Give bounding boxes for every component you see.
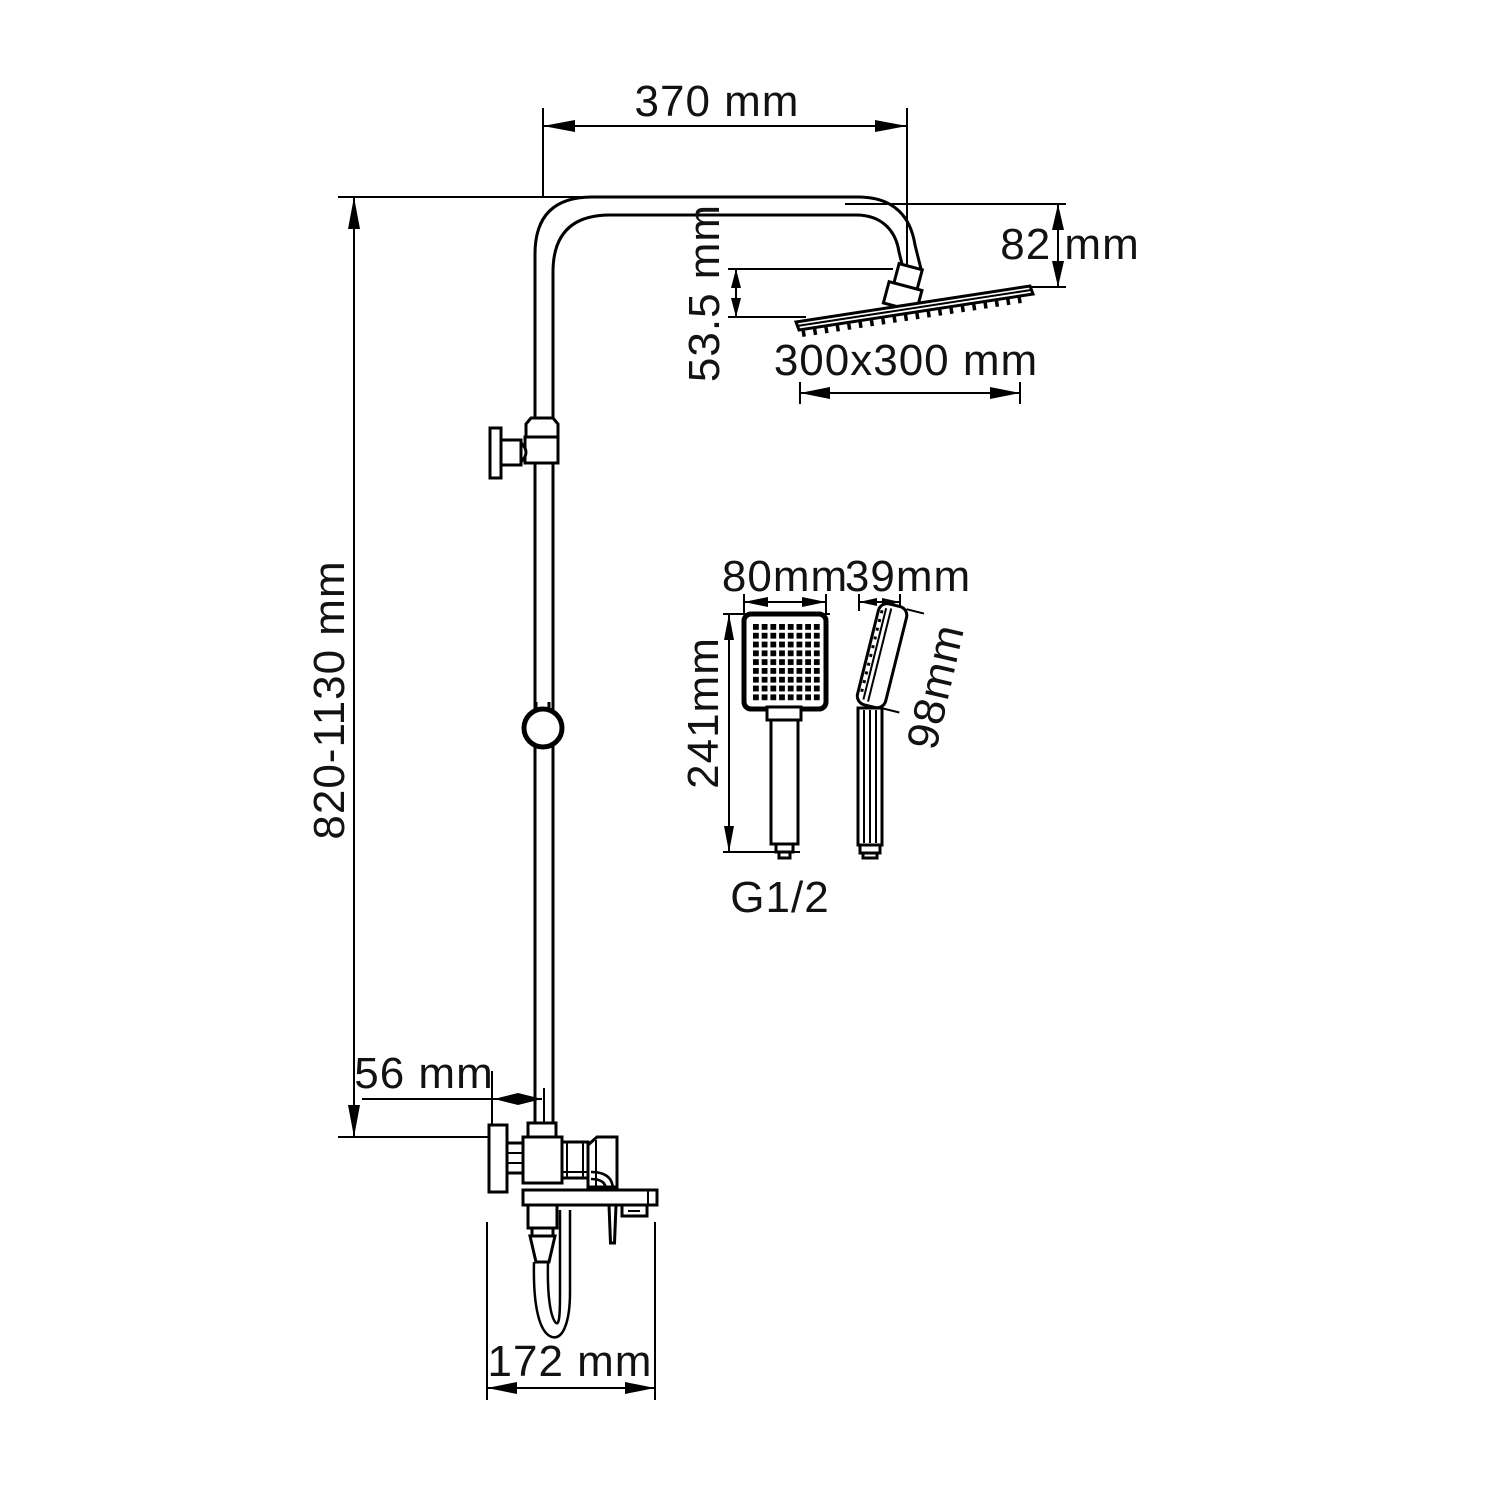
handle-shoulder <box>767 707 801 720</box>
shower-system-drawing: 370 mm 820-1130 mm 82 mm 53.5 mm <box>0 0 1500 1500</box>
face-dim-tick-top <box>907 609 924 613</box>
dimension-label: 39mm <box>845 552 971 601</box>
dimension-820-1130: 820-1130 mm <box>305 197 620 1137</box>
ring-body <box>524 709 562 747</box>
diverter-body <box>525 437 558 463</box>
dimension-label: 370 mm <box>635 77 800 126</box>
side-thread-nipple-tip <box>863 853 877 858</box>
arrowhead-down <box>724 826 734 852</box>
handshower-side: 39mm 98mm <box>845 552 974 858</box>
mixer-assembly <box>489 1123 657 1337</box>
arrowhead-down <box>731 298 741 317</box>
arrowhead-up <box>731 269 741 288</box>
mixer-body <box>523 1137 562 1183</box>
arrowhead-right <box>990 387 1020 399</box>
dimension-label: 820-1130 mm <box>305 560 354 839</box>
dimension-300x300: 300x300 mm <box>774 336 1038 404</box>
diverter-knob <box>490 418 558 478</box>
arrowhead-down <box>348 1105 360 1137</box>
knob-stem <box>501 440 521 465</box>
arrowhead-left <box>494 1093 518 1105</box>
dimension-label: 53.5 mm <box>680 204 729 382</box>
wall-plate <box>489 1125 507 1192</box>
wall-nut <box>507 1143 523 1173</box>
handshower-nozzle-grid <box>753 624 820 701</box>
dimension-39: 39mm <box>845 552 971 616</box>
arrowhead-up <box>724 614 734 640</box>
knob-cap <box>490 428 501 478</box>
technical-drawing-page: 370 mm 820-1130 mm 82 mm 53.5 mm <box>0 0 1500 1500</box>
dimension-82: 82 mm <box>845 204 1140 287</box>
arrowhead-up <box>348 197 360 229</box>
thread-label: G1/2 <box>730 873 829 922</box>
face-dimension-label: 98mm <box>898 620 974 754</box>
dimension-56: 56 mm <box>354 1049 544 1128</box>
handshower-front: 80mm 241mm G1/2 <box>679 552 848 922</box>
slider-ring <box>524 702 562 747</box>
spout-deck <box>523 1190 657 1205</box>
arrowhead-right <box>518 1093 542 1105</box>
dimension-label: 82 mm <box>1000 220 1139 269</box>
hose-connector <box>528 1205 557 1228</box>
face-dim-tick-bottom <box>882 708 899 712</box>
dimension-label: 241mm <box>679 637 728 789</box>
diverter-collar <box>526 418 558 437</box>
arrowhead-left <box>543 120 575 132</box>
knob-joint <box>521 443 526 462</box>
dimension-80: 80mm <box>722 552 848 613</box>
hose-connector-cone <box>530 1236 555 1262</box>
handshower-handle <box>771 720 798 844</box>
dimension-label: 172 mm <box>488 1337 653 1386</box>
handle-lever <box>609 1205 616 1243</box>
dimension-label: 80mm <box>722 552 848 601</box>
arrowhead-left <box>800 387 830 399</box>
side-head <box>855 602 908 710</box>
pipe-base-flange <box>528 1123 556 1137</box>
dimension-label: 300x300 mm <box>774 336 1038 385</box>
arrowhead-right <box>875 120 907 132</box>
dimension-label: 56 mm <box>354 1049 493 1098</box>
